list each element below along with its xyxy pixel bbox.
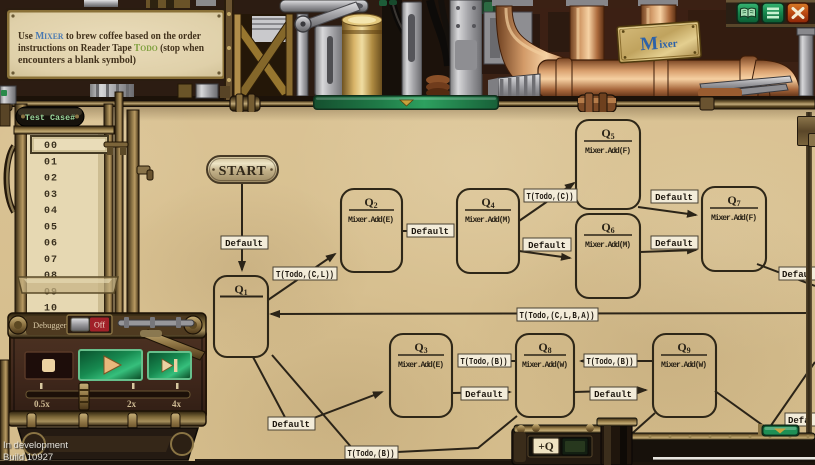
svg-text:05: 05	[44, 222, 58, 233]
svg-text:Off: Off	[94, 321, 105, 330]
svg-text:Q2: Q2	[364, 195, 377, 210]
svg-text:Q8: Q8	[538, 340, 551, 355]
svg-text:Default: Default	[594, 390, 632, 400]
svg-text:instructions on Reader Tape TO: instructions on Reader Tape TODO (stop w…	[18, 43, 204, 54]
svg-text:ixer: ixer	[659, 38, 678, 51]
svg-text:+Q: +Q	[538, 441, 554, 453]
svg-text:Mixer.Add(F): Mixer.Add(F)	[711, 214, 757, 223]
svg-text:Default: Default	[655, 193, 693, 203]
svg-text:04: 04	[44, 206, 58, 217]
svg-text:03: 03	[44, 190, 58, 201]
svg-text:00: 00	[44, 141, 58, 152]
svg-text:encounters a blank symbol): encounters a blank symbol)	[18, 55, 136, 66]
svg-text:Defau: Defau	[782, 270, 809, 280]
svg-text:07: 07	[44, 255, 58, 266]
svg-text:Mixer.Add(M): Mixer.Add(M)	[585, 241, 631, 250]
svg-text:Mixer.Add(E): Mixer.Add(E)	[398, 361, 444, 370]
svg-text:02: 02	[44, 174, 58, 185]
svg-text:Use MIXER to brew coffee based: Use MIXER to brew coffee based on the or…	[18, 31, 201, 42]
svg-text:06: 06	[44, 239, 58, 250]
svg-text:Q9: Q9	[677, 340, 690, 355]
svg-text:Mixer.Add(W): Mixer.Add(W)	[661, 361, 707, 370]
svg-text:Default: Default	[528, 241, 566, 251]
svg-text:T(Todo,(C,L)): T(Todo,(C,L))	[276, 270, 334, 280]
svg-text:Default: Default	[411, 227, 449, 237]
svg-text:T(Todo,(C,L,B,A)): T(Todo,(C,L,B,A))	[520, 311, 595, 321]
svg-text:Q6: Q6	[601, 220, 614, 235]
svg-text:M: M	[639, 33, 658, 55]
svg-text:Default: Default	[465, 390, 503, 400]
svg-text:Q3: Q3	[414, 340, 427, 355]
svg-text:Q5: Q5	[601, 126, 614, 141]
svg-text:T(Todo,(C)): T(Todo,(C))	[527, 192, 574, 202]
svg-text:T(Todo,(B)): T(Todo,(B))	[461, 357, 508, 367]
svg-text:01: 01	[44, 158, 58, 169]
svg-text:Mixer.Add(M): Mixer.Add(M)	[465, 216, 511, 225]
svg-text:Mixer.Add(F): Mixer.Add(F)	[585, 147, 631, 156]
svg-text:T(Todo,(B)): T(Todo,(B))	[587, 357, 634, 367]
svg-text:Q7: Q7	[727, 193, 740, 208]
svg-text:Mixer.Add(W): Mixer.Add(W)	[522, 361, 568, 370]
svg-text:Default: Default	[655, 239, 693, 249]
svg-text:Mixer.Add(E): Mixer.Add(E)	[348, 216, 394, 225]
svg-text:Q4: Q4	[481, 195, 494, 210]
svg-text:Test Case#: Test Case#	[25, 113, 75, 123]
svg-text:Debugger: Debugger	[33, 320, 67, 330]
